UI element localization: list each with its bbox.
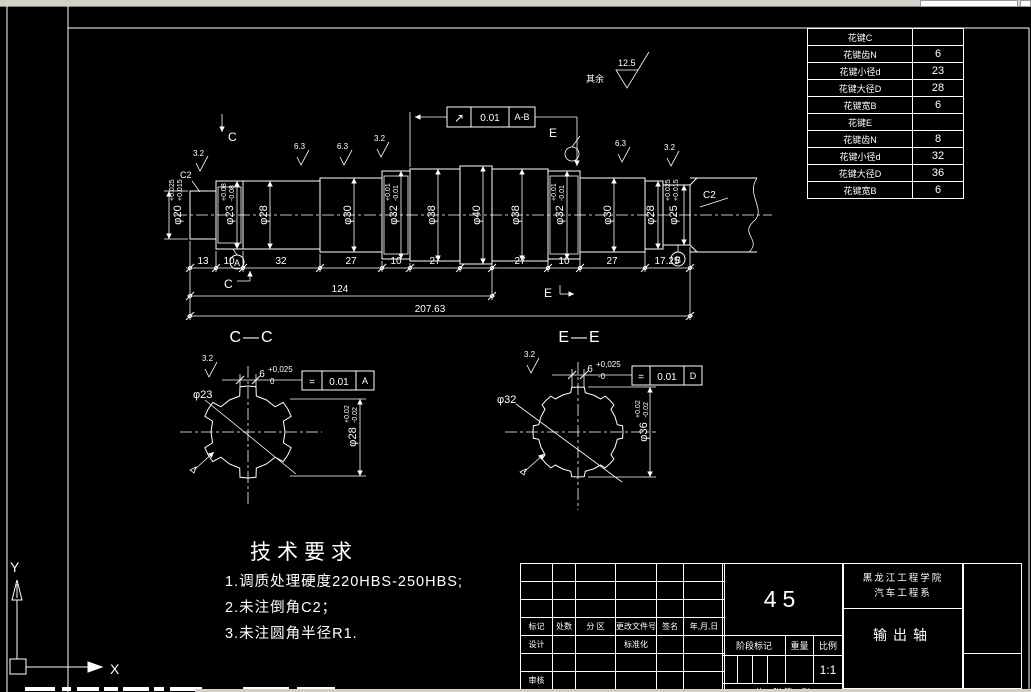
dia-label: φ28: [258, 205, 270, 224]
row-standardization: 标准化: [616, 636, 657, 654]
tech-requirements: 技术要求 1.调质处理硬度220HBS-250HBS; 2.未注倒角C2； 3.…: [225, 536, 545, 644]
spline-width: 6: [587, 364, 593, 375]
table-row: 花键大径D36: [808, 165, 964, 182]
symmetry-symbol: =: [638, 372, 644, 383]
dim-10: 10: [390, 256, 402, 267]
dia-label: φ30: [342, 205, 354, 224]
stage-cell: [752, 655, 768, 684]
section-e-letter: E: [549, 126, 557, 140]
dia-label: φ30: [602, 205, 614, 224]
row-design: 设计: [521, 636, 553, 654]
table-row: 花键齿N6: [808, 46, 964, 63]
table-row: 花键大径D28: [808, 80, 964, 97]
ucs-y-label: Y: [10, 559, 20, 575]
spline-width-upper: +0,025: [596, 360, 621, 369]
spline-width-upper: +0,025: [268, 365, 293, 374]
svg-text:+0.015: +0.015: [673, 179, 680, 201]
roughness-value: 3.2: [193, 149, 205, 158]
dim-10: 10: [558, 256, 570, 267]
roughness-value: 12.5: [618, 58, 636, 68]
dim-27: 27: [606, 256, 618, 267]
cad-drawing-canvas[interactable]: φ20 +0.025 +0.015 φ23 +0.08 -0.08 φ28 φ3…: [0, 0, 1031, 692]
symmetry-value: 0.01: [329, 377, 349, 388]
stage-mark-label: 阶段标记: [722, 635, 786, 656]
stage-cell: [722, 655, 738, 684]
section-cc-title: C—C: [229, 329, 274, 346]
minor-dia-label: φ23: [193, 389, 212, 401]
svg-text:+0.08: +0.08: [221, 183, 228, 201]
svg-text:+0.02: +0.02: [635, 400, 642, 418]
symmetry-symbol: =: [309, 377, 315, 388]
part-name-cell: 输出轴: [843, 608, 963, 689]
roughness-value: 3.2: [524, 350, 536, 359]
svg-text:-0.08: -0.08: [229, 185, 236, 201]
scale-label: 比例: [813, 635, 843, 656]
table-row: 花键C: [808, 29, 964, 46]
clipped-bottom-text: [77, 687, 99, 691]
title-block: 标记 处数 分 区 更改文件号 签名 年,月,日 设计 标准化 审核 45 阶段…: [520, 563, 1030, 692]
svg-text:+0.02: +0.02: [344, 405, 351, 423]
tech-requirement-item: 2.未注倒角C2；: [225, 599, 545, 618]
tech-requirement-item: 3.未注圆角半径R1.: [225, 625, 545, 644]
svg-text:-0.01: -0.01: [393, 185, 400, 201]
dia-label: φ28: [645, 205, 657, 224]
symmetry-datum: D: [690, 371, 697, 381]
svg-text:+0.015: +0.015: [177, 179, 184, 201]
dia-label: φ23: [224, 205, 236, 224]
clipped-bottom-text: [25, 687, 55, 691]
symmetry-value: 0.01: [657, 372, 677, 383]
length-dimensions: 13 10 32 27 10 27 27 10 27 17.25 124 207…: [186, 241, 694, 320]
row-check: 审核: [521, 672, 553, 690]
header-mark: 标记: [521, 618, 553, 636]
stage-cell: [737, 655, 753, 684]
datum-a-letter: A: [234, 258, 240, 268]
table-row: 花键齿N8: [808, 131, 964, 148]
qiyu-label: 其余: [586, 73, 604, 84]
runout-value: 0.01: [480, 113, 500, 124]
datum-b-letter: B: [675, 255, 681, 265]
table-row: 花键E: [808, 114, 964, 131]
scale-value: 1:1: [813, 655, 843, 684]
svg-text:-0.02: -0.02: [643, 402, 650, 418]
dia-label: φ38: [426, 205, 438, 224]
general-roughness-note: 其余 12.5: [586, 52, 649, 88]
dia-label: φ25: [668, 205, 680, 224]
header-zone: 分 区: [576, 618, 616, 636]
roughness-value: 3.2: [374, 134, 386, 143]
material-cell: 45: [722, 563, 843, 636]
section-ee-view: E—E 6 +0,025 -0 = 0.01 D φ32: [497, 329, 702, 510]
spline-width: 6: [259, 369, 265, 380]
svg-text:-0.01: -0.01: [559, 185, 566, 201]
clipped-bottom-text: [123, 687, 149, 691]
dim-27: 27: [429, 256, 441, 267]
dia-label: φ32: [388, 205, 400, 224]
clipped-bottom-text: [62, 687, 71, 691]
clipped-bottom-text: [154, 687, 164, 691]
tech-requirements-title: 技术要求: [250, 536, 545, 566]
svg-text:+0.025: +0.025: [169, 179, 176, 201]
runout-datum: A-B: [514, 112, 529, 122]
header-count: 处数: [553, 618, 576, 636]
surface-roughness-marks: 3.2 6.3 6.3 3.2 6.3 3.2: [193, 134, 679, 171]
roughness-value: 6.3: [337, 142, 349, 151]
dim-27: 27: [514, 256, 526, 267]
weight-value-cell: [785, 655, 814, 684]
runout-symbol: ↗: [454, 111, 464, 125]
school-cell: 黑龙江工程学院 汽车工程系: [843, 563, 963, 609]
minor-dia-label: φ32: [497, 394, 516, 406]
roughness-value: 3.2: [664, 143, 676, 152]
dim-total: 207.63: [415, 304, 446, 315]
spline-parameter-table: 花键C 花键齿N6 花键小径d23 花键大径D28 花键宽B6 花键E 花键齿N…: [807, 28, 964, 199]
svg-text:+0.01: +0.01: [551, 183, 558, 201]
dia-label: φ40: [471, 205, 483, 224]
margin-strip: [963, 563, 1022, 689]
ucs-x-label: X: [110, 661, 120, 677]
section-e-letter: E: [544, 286, 552, 300]
dia-label: φ32: [554, 205, 566, 224]
stage-cell: [767, 655, 786, 684]
revision-table: 标记 处数 分 区 更改文件号 签名 年,月,日 设计 标准化 审核: [520, 563, 725, 692]
section-c-letter: C: [228, 130, 237, 144]
section-ee-title: E—E: [558, 329, 601, 346]
dim-13: 13: [197, 256, 209, 267]
spline-width-lower: 0: [270, 377, 275, 386]
table-row: 花键宽B6: [808, 97, 964, 114]
dia-label: φ38: [510, 205, 522, 224]
dim-27: 27: [345, 256, 357, 267]
spline-width-lower: -0: [598, 372, 606, 381]
section-cc-view: C—C 6 +0,025 0 = 0.01 A φ23: [180, 329, 374, 505]
chamfer-labels: C2 C2: [180, 170, 728, 207]
table-row: 花键小径d32: [808, 148, 964, 165]
svg-text:+0.025: +0.025: [665, 179, 672, 201]
table-row: 花键宽B6: [808, 182, 964, 199]
header-date: 年,月,日: [684, 618, 725, 636]
section-c-letter: C: [224, 277, 233, 291]
school-line2: 汽车工程系: [874, 586, 932, 601]
header-file: 更改文件号: [616, 618, 657, 636]
c2-label: C2: [703, 190, 716, 201]
diameter-labels: φ20 +0.025 +0.015 φ23 +0.08 -0.08 φ28 φ3…: [169, 179, 680, 224]
clipped-bottom-text: [104, 687, 118, 691]
school-line1: 黑龙江工程学院: [863, 571, 944, 586]
roughness-value: 3.2: [202, 354, 214, 363]
major-dia-label: φ28: [347, 427, 359, 446]
margin-strip-divider: [963, 653, 1022, 654]
header-sign: 签名: [657, 618, 684, 636]
major-dia-label: φ36: [638, 422, 650, 441]
c2-label: C2: [180, 170, 192, 180]
dim-32: 32: [275, 256, 287, 267]
svg-text:-0.02: -0.02: [352, 407, 359, 423]
dim-124: 124: [332, 284, 349, 295]
ucs-icon: Y X: [10, 559, 120, 677]
weight-label: 重量: [785, 635, 814, 656]
roughness-value: 6.3: [615, 139, 627, 148]
svg-text:+0.01: +0.01: [385, 183, 392, 201]
tech-requirement-item: 1.调质处理硬度220HBS-250HBS;: [225, 573, 545, 592]
table-row: 花键小径d23: [808, 63, 964, 80]
roughness-value: 6.3: [294, 142, 306, 151]
dia-label: φ20: [172, 205, 184, 224]
symmetry-datum: A: [362, 376, 368, 386]
